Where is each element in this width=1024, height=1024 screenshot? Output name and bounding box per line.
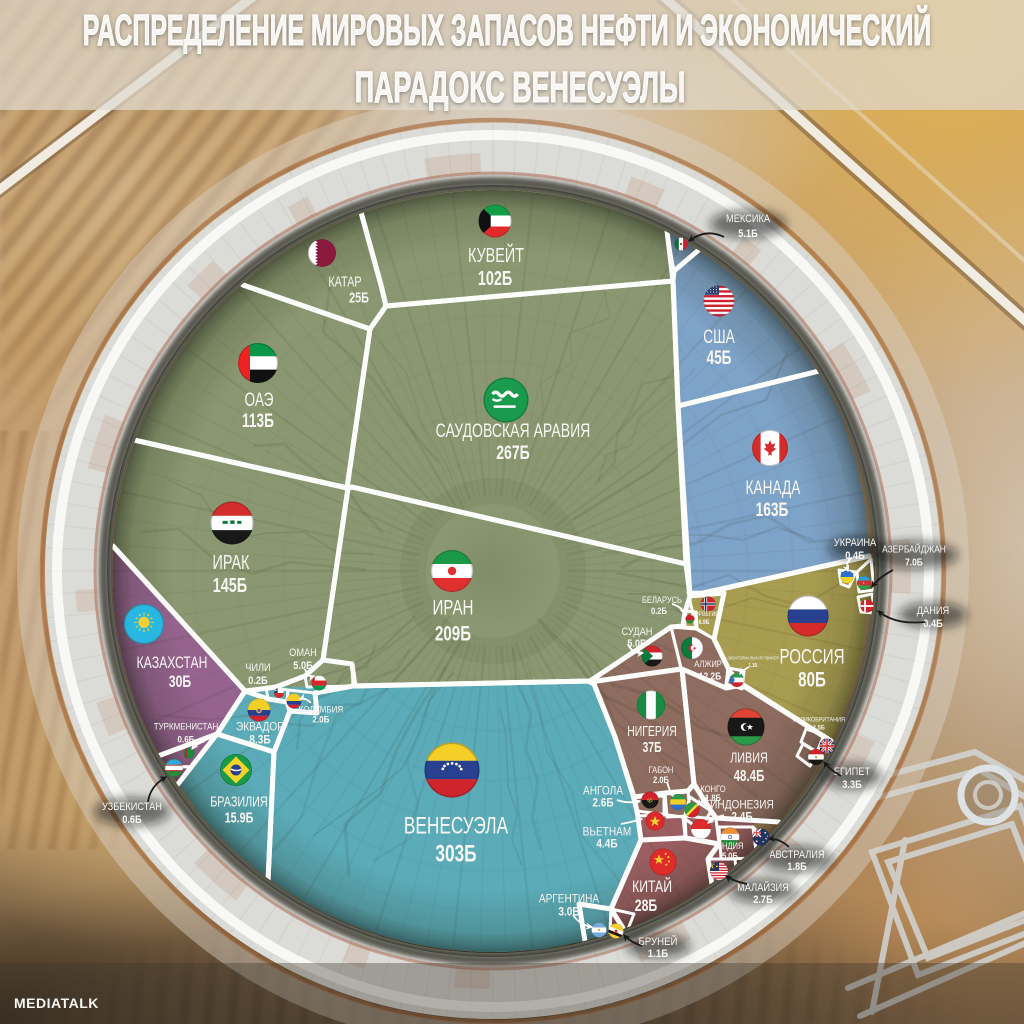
svg-text:102Б: 102Б	[478, 267, 512, 290]
svg-text:НОРВЕГИЯ: НОРВЕГИЯ	[691, 612, 719, 618]
svg-text:5.1Б: 5.1Б	[738, 228, 757, 240]
svg-text:АРГЕНТИНА: АРГЕНТИНА	[539, 893, 600, 906]
svg-text:КАЗАХСТАН: КАЗАХСТАН	[137, 654, 208, 672]
svg-text:РАСПРЕДЕЛЕНИЕ МИРОВЫХ ЗАПАСОВ: РАСПРЕДЕЛЕНИЕ МИРОВЫХ ЗАПАСОВ НЕФТИ И ЭК…	[83, 6, 931, 55]
svg-text:3.3Б: 3.3Б	[842, 779, 861, 791]
svg-text:6.9Б: 6.9Б	[699, 620, 710, 626]
svg-text:1.8Б: 1.8Б	[787, 861, 806, 873]
svg-text:0.6Б: 0.6Б	[122, 814, 141, 826]
svg-text:28Б: 28Б	[635, 897, 658, 915]
svg-text:2.7Б: 2.7Б	[753, 894, 772, 906]
svg-text:ВЕНЕСУЭЛА: ВЕНЕСУЭЛА	[404, 813, 508, 839]
svg-text:КИТАЙ: КИТАЙ	[632, 876, 672, 897]
svg-text:80Б: 80Б	[798, 667, 826, 691]
svg-text:8.3Б: 8.3Б	[249, 734, 270, 747]
svg-text:КАТАР: КАТАР	[328, 273, 361, 290]
svg-text:7.0Б: 7.0Б	[905, 557, 923, 568]
svg-text:1.1Б: 1.1Б	[749, 662, 758, 667]
svg-text:3.0Б: 3.0Б	[558, 906, 579, 919]
svg-text:БРУНЕЙ: БРУНЕЙ	[638, 934, 677, 948]
svg-text:12.2Б: 12.2Б	[699, 671, 722, 682]
svg-text:ОАЭ: ОАЭ	[244, 389, 273, 411]
svg-text:2.0Б: 2.0Б	[313, 714, 330, 725]
svg-text:ИРАК: ИРАК	[212, 551, 250, 574]
svg-text:БРАЗИЛИЯ: БРАЗИЛИЯ	[210, 793, 267, 810]
svg-text:США: США	[703, 326, 735, 348]
svg-text:ДАНИЯ: ДАНИЯ	[917, 605, 949, 617]
svg-text:МЕКСИКА: МЕКСИКА	[726, 213, 770, 225]
svg-text:ОМАН: ОМАН	[289, 647, 317, 659]
svg-text:ЕГИПЕТ: ЕГИПЕТ	[834, 766, 870, 778]
svg-text:MEDIATALK: MEDIATALK	[14, 995, 99, 1011]
svg-text:30Б: 30Б	[169, 673, 192, 691]
svg-text:303Б: 303Б	[435, 841, 476, 867]
svg-text:5.0Б: 5.0Б	[293, 660, 312, 672]
svg-text:2.6Б: 2.6Б	[592, 797, 613, 810]
svg-text:1.5Б: 1.5Б	[813, 725, 825, 731]
svg-text:ТУРКМЕНИСТАН: ТУРКМЕНИСТАН	[154, 721, 219, 732]
svg-text:ЭКВАДОР: ЭКВАДОР	[236, 721, 284, 734]
svg-text:ВЕЛИКОБРИТАНИЯ: ВЕЛИКОБРИТАНИЯ	[793, 717, 845, 723]
svg-text:АЗЕРБАЙДЖАН: АЗЕРБАЙДЖАН	[882, 543, 946, 555]
svg-text:ПАРАДОКС ВЕНЕСУЭЛЫ: ПАРАДОКС ВЕНЕСУЭЛЫ	[355, 62, 686, 112]
svg-text:163Б: 163Б	[756, 499, 789, 521]
svg-text:АВСТРАЛИЯ: АВСТРАЛИЯ	[769, 849, 824, 861]
svg-text:УЗБЕКИСТАН: УЗБЕКИСТАН	[102, 801, 162, 813]
svg-text:37Б: 37Б	[642, 740, 661, 756]
svg-text:1.1Б: 1.1Б	[648, 947, 669, 960]
svg-text:0.4Б: 0.4Б	[923, 618, 942, 630]
svg-text:45Б: 45Б	[706, 347, 731, 369]
svg-text:25Б: 25Б	[349, 289, 369, 306]
svg-text:ЧИЛИ: ЧИЛИ	[245, 662, 270, 674]
svg-text:АЛЖИР: АЛЖИР	[694, 659, 722, 670]
svg-text:РОССИЯ: РОССИЯ	[779, 644, 844, 668]
svg-text:2.4Б: 2.4Б	[731, 811, 752, 824]
svg-text:145Б: 145Б	[213, 574, 247, 597]
svg-text:ИРАН: ИРАН	[433, 595, 474, 619]
svg-text:МАЛАЙЗИЯ: МАЛАЙЗИЯ	[737, 880, 789, 894]
svg-text:КУВЕЙТ: КУВЕЙТ	[468, 244, 524, 267]
svg-text:КАНАДА: КАНАДА	[746, 477, 801, 499]
svg-text:0.6Б: 0.6Б	[178, 734, 195, 745]
svg-text:0.2Б: 0.2Б	[248, 675, 267, 687]
svg-text:5.0Б: 5.0Б	[722, 851, 738, 862]
svg-text:ЭКВАТОРИАЛЬНАЯ ГВИНЕЯ: ЭКВАТОРИАЛЬНАЯ ГВИНЕЯ	[727, 655, 779, 660]
svg-text:УКРАИНА: УКРАИНА	[834, 537, 877, 549]
svg-text:113Б: 113Б	[242, 410, 274, 432]
svg-text:48.4Б: 48.4Б	[734, 766, 765, 784]
svg-text:209Б: 209Б	[435, 621, 471, 645]
svg-text:ЛИВИЯ: ЛИВИЯ	[730, 749, 768, 766]
svg-text:НИГЕРИЯ: НИГЕРИЯ	[627, 724, 677, 740]
svg-text:БЕЛАРУСЬ: БЕЛАРУСЬ	[642, 595, 683, 606]
svg-text:15.9Б: 15.9Б	[225, 809, 254, 826]
svg-text:САУДОВСКАЯ АРАВИЯ: САУДОВСКАЯ АРАВИЯ	[436, 420, 591, 442]
svg-text:4.4Б: 4.4Б	[596, 838, 617, 851]
svg-text:0.2Б: 0.2Б	[651, 606, 667, 617]
svg-text:СУДАН: СУДАН	[622, 626, 653, 638]
svg-text:267Б: 267Б	[496, 442, 530, 464]
